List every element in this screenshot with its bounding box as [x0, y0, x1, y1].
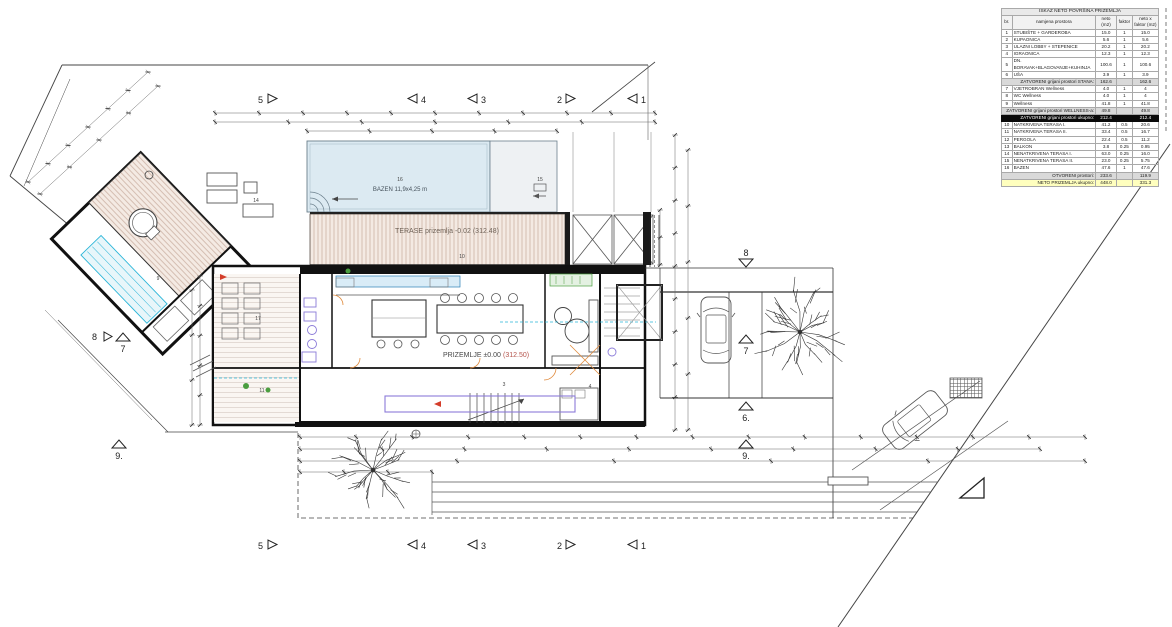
table-cell: 212.4: [1132, 115, 1158, 122]
table-cell: NENATKRIVENA TERASA II.: [1012, 158, 1095, 165]
table-cell: 0.5: [1117, 122, 1133, 129]
main-building: [190, 266, 656, 427]
col-header-total: neto x faktor (m2): [1132, 16, 1158, 29]
col-header-br: br.: [1002, 16, 1013, 29]
grid-left-8: 8: [92, 332, 97, 342]
area-table-title-row: ISKAZ NETO POVRŠINA PRIZEMLJA: [1002, 9, 1159, 16]
table-cell: OTVORENI prostori:: [1002, 172, 1096, 179]
table-cell: 1: [1117, 86, 1133, 93]
table-cell: [1117, 179, 1133, 186]
table-cell: 12.3: [1096, 51, 1117, 58]
table-cell: [1117, 107, 1133, 114]
table-cell: STUBIŠTE + GARDEROBA: [1012, 29, 1095, 36]
room-number-11: 11: [259, 388, 264, 394]
table-cell: VJETROBRAN Wellness: [1012, 86, 1095, 93]
room-number-9: 9: [157, 276, 160, 282]
table-row: 2KUPAONICA5.615.6: [1002, 36, 1159, 43]
grid-bottom-1: 1: [641, 541, 646, 551]
table-cell: 1: [1117, 165, 1133, 172]
room-number-4: 4: [589, 384, 592, 390]
table-cell: 13: [1002, 143, 1013, 150]
col-header-neto: neto (m2): [1096, 16, 1117, 29]
table-cell: 1: [1117, 58, 1133, 71]
table-row-yellow: NETO PRIZEMLJA ukupno:448.0331.3: [1002, 179, 1159, 186]
floor-plan-drawing: 5 4 3 2 1 5 4 3 2 1 8 7 6. 9. 8 7 9.: [0, 0, 1172, 627]
table-row: 6UŠA3.913.9: [1002, 71, 1159, 78]
table-cell: 47.6: [1096, 165, 1117, 172]
grid-right-8: 8: [743, 248, 748, 258]
table-cell: 10: [1002, 122, 1013, 129]
table-cell: NENATKRIVENA TERASA I.: [1012, 151, 1095, 158]
table-cell: 4.0: [1096, 86, 1117, 93]
table-cell: Wellness: [1012, 100, 1095, 107]
parking-area: [645, 268, 833, 518]
table-cell: 15.0: [1096, 29, 1117, 36]
grid-right-9: 9.: [742, 451, 750, 461]
table-cell: 20.6: [1132, 122, 1158, 129]
table-cell: 20.2: [1132, 44, 1158, 51]
table-row-sub: ZATVORENI grijani prostori WELLNESS-a:49…: [1002, 107, 1159, 114]
table-cell: BAZEN: [1012, 165, 1095, 172]
table-cell: 4: [1132, 86, 1158, 93]
grid-bottom-4: 4: [421, 541, 426, 551]
table-row: 15NENATKRIVENA TERASA II.23.00.255.75: [1002, 158, 1159, 165]
table-cell: 2: [1002, 36, 1013, 43]
table-cell: 5.75: [1132, 158, 1158, 165]
table-cell: 22.4: [1096, 136, 1117, 143]
table-cell: 16.0: [1132, 151, 1158, 158]
table-cell: NATKRIVENA TERASA I.: [1012, 122, 1095, 129]
table-cell: 15.0: [1132, 29, 1158, 36]
table-cell: [1117, 79, 1133, 86]
table-cell: 63.0: [1096, 151, 1117, 158]
table-cell: 11.2: [1132, 136, 1158, 143]
table-cell: [1117, 115, 1133, 122]
table-cell: BALKON: [1012, 143, 1095, 150]
room-number-14: 14: [253, 198, 259, 204]
grid-top-2: 2: [557, 95, 562, 105]
table-cell: ZATVORENI grijani prostori ukupno:: [1002, 115, 1096, 122]
table-cell: 4: [1002, 51, 1013, 58]
col-header-faktor: faktor: [1117, 16, 1133, 29]
grid-top-1: 1: [641, 95, 646, 105]
table-row: 10NATKRIVENA TERASA I.41.20.520.6: [1002, 122, 1159, 129]
table-cell: ZATVORENI grijani prostori WELLNESS-a:: [1002, 107, 1096, 114]
grid-right-7: 7: [743, 346, 748, 356]
table-cell: 6: [1002, 71, 1013, 78]
table-cell: 0.25: [1117, 158, 1133, 165]
terrace: [310, 213, 565, 265]
table-cell: WC Wellness: [1012, 93, 1095, 100]
table-cell: 1: [1002, 29, 1013, 36]
table-cell: [1117, 172, 1133, 179]
table-row: 13BALKON3.80.250.95: [1002, 143, 1159, 150]
terrace-label: TERASE prizemlja -0.02 (312.48): [395, 228, 499, 235]
table-cell: 1: [1117, 36, 1133, 43]
grid-top-4: 4: [421, 95, 426, 105]
table-row: 11NATKRIVENA TERASA II.33.40.516.7: [1002, 129, 1159, 136]
table-cell: 0.25: [1117, 151, 1133, 158]
table-cell: 16.7: [1132, 129, 1158, 136]
floor-level-label: (312.50): [503, 352, 529, 359]
table-row: 7VJETROBRAN Wellness4.014: [1002, 86, 1159, 93]
table-cell: 49.8: [1096, 107, 1117, 114]
grid-top-3: 3: [481, 95, 486, 105]
grid-bottom-2: 2: [557, 541, 562, 551]
table-cell: 4: [1132, 93, 1158, 100]
net-area-table: ISKAZ NETO POVRŠINA PRIZEMLJA br. namjen…: [1001, 8, 1159, 187]
table-row-sub: ZATVORENI grijani prostori STANA:162.616…: [1002, 79, 1159, 86]
grid-bottom-5: 5: [258, 541, 263, 551]
table-cell: 233.6: [1096, 172, 1117, 179]
area-table-header-row: br. namjena prostora neto (m2) faktor ne…: [1002, 16, 1159, 29]
table-row: 4IGRAONICA12.3112.3: [1002, 51, 1159, 58]
table-cell: DN. BORAVAK+BLAGOVANJE+KUHINJA: [1012, 58, 1095, 71]
table-row: 12PERGOLA22.40.511.2: [1002, 136, 1159, 143]
table-cell: 14: [1002, 151, 1013, 158]
room-number-3: 3: [503, 382, 506, 388]
table-cell: 23.0: [1096, 158, 1117, 165]
table-cell: 12.3: [1132, 51, 1158, 58]
floor-label: PRIZEMLJE ±0.00: [443, 352, 501, 359]
table-cell: 162.6: [1132, 79, 1158, 86]
area-table-body: 1STUBIŠTE + GARDEROBA15.0115.02KUPAONICA…: [1002, 29, 1159, 186]
table-cell: UŠA: [1012, 71, 1095, 78]
table-cell: 5: [1002, 58, 1013, 71]
grid-left-9: 9.: [115, 451, 123, 461]
room-number-16: 16: [397, 177, 403, 183]
table-cell: 9: [1002, 100, 1013, 107]
table-row: 5DN. BORAVAK+BLAGOVANJE+KUHINJA100.61100…: [1002, 58, 1159, 71]
table-cell: ULAZNI LOBBY + STEPENICE: [1012, 44, 1095, 51]
table-cell: 100.6: [1096, 58, 1117, 71]
table-cell: 119.9: [1132, 172, 1158, 179]
grid-bottom-3: 3: [481, 541, 486, 551]
table-cell: 7: [1002, 86, 1013, 93]
col-header-name: namjena prostora: [1012, 16, 1095, 29]
table-cell: 49.8: [1132, 107, 1158, 114]
table-row-sub: OTVORENI prostori:233.6119.9: [1002, 172, 1159, 179]
table-cell: ZATVORENI grijani prostori STANA:: [1002, 79, 1096, 86]
table-cell: 3.9: [1132, 71, 1158, 78]
table-row: 14NENATKRIVENA TERASA I.63.00.2516.0: [1002, 151, 1159, 158]
table-cell: 47.6: [1132, 165, 1158, 172]
area-table-title: ISKAZ NETO POVRŠINA PRIZEMLJA: [1002, 9, 1159, 16]
table-cell: 1: [1117, 29, 1133, 36]
area-table: ISKAZ NETO POVRŠINA PRIZEMLJA br. namjen…: [1001, 8, 1159, 187]
table-row: 3ULAZNI LOBBY + STEPENICE20.2120.2: [1002, 44, 1159, 51]
grid-top-5: 5: [258, 95, 263, 105]
table-cell: 16: [1002, 165, 1013, 172]
table-cell: 162.6: [1096, 79, 1117, 86]
table-cell: 0.25: [1117, 143, 1133, 150]
table-cell: 212.4: [1096, 115, 1117, 122]
table-cell: 41.8: [1096, 100, 1117, 107]
table-cell: 3: [1002, 44, 1013, 51]
tree: [328, 431, 410, 509]
table-cell: NATKRIVENA TERASA II.: [1012, 129, 1095, 136]
pool-label: BAZEN 11,9x4,25 m: [373, 187, 427, 193]
table-row-black: ZATVORENI grijani prostori ukupno:212.42…: [1002, 115, 1159, 122]
table-cell: KUPAONICA: [1012, 36, 1095, 43]
grid-left-7: 7: [120, 344, 125, 354]
table-cell: 15: [1002, 158, 1013, 165]
table-cell: 331.3: [1132, 179, 1158, 186]
floor-plan-canvas: 5 4 3 2 1 5 4 3 2 1 8 7 6. 9. 8 7 9.: [0, 0, 1172, 627]
table-cell: 33.4: [1096, 129, 1117, 136]
room-number-17: 17: [255, 316, 261, 322]
pergola: [565, 132, 653, 265]
table-cell: 4.0: [1096, 93, 1117, 100]
table-row: 9Wellness41.8141.8: [1002, 100, 1159, 107]
table-cell: 1: [1117, 44, 1133, 51]
outdoor-lounge-set: [207, 173, 273, 217]
table-row: 8WC Wellness4.014: [1002, 93, 1159, 100]
table-cell: 8: [1002, 93, 1013, 100]
table-cell: 0.5: [1117, 129, 1133, 136]
table-cell: 5.6: [1096, 36, 1117, 43]
table-cell: 0.95: [1132, 143, 1158, 150]
table-cell: 3.8: [1096, 143, 1117, 150]
table-cell: 1: [1117, 100, 1133, 107]
table-cell: NETO PRIZEMLJA ukupno:: [1002, 179, 1096, 186]
pool: [307, 141, 557, 212]
table-cell: 100.6: [1132, 58, 1158, 71]
table-row: 16BAZEN47.6147.6: [1002, 165, 1159, 172]
table-cell: IGRAONICA: [1012, 51, 1095, 58]
table-cell: 0.5: [1117, 136, 1133, 143]
table-cell: 11: [1002, 129, 1013, 136]
table-cell: 1: [1117, 51, 1133, 58]
room-number-10: 10: [459, 254, 465, 260]
table-cell: 1: [1117, 93, 1133, 100]
table-cell: 448.0: [1096, 179, 1117, 186]
table-cell: 5.6: [1132, 36, 1158, 43]
table-cell: 41.8: [1132, 100, 1158, 107]
table-cell: 1: [1117, 71, 1133, 78]
table-cell: 20.2: [1096, 44, 1117, 51]
table-cell: 3.9: [1096, 71, 1117, 78]
table-cell: 12: [1002, 136, 1013, 143]
table-cell: PERGOLA: [1012, 136, 1095, 143]
grid-right-6: 6.: [742, 413, 750, 423]
table-row: 1STUBIŠTE + GARDEROBA15.0115.0: [1002, 29, 1159, 36]
room-number-15: 15: [537, 177, 543, 183]
table-cell: 41.2: [1096, 122, 1117, 129]
